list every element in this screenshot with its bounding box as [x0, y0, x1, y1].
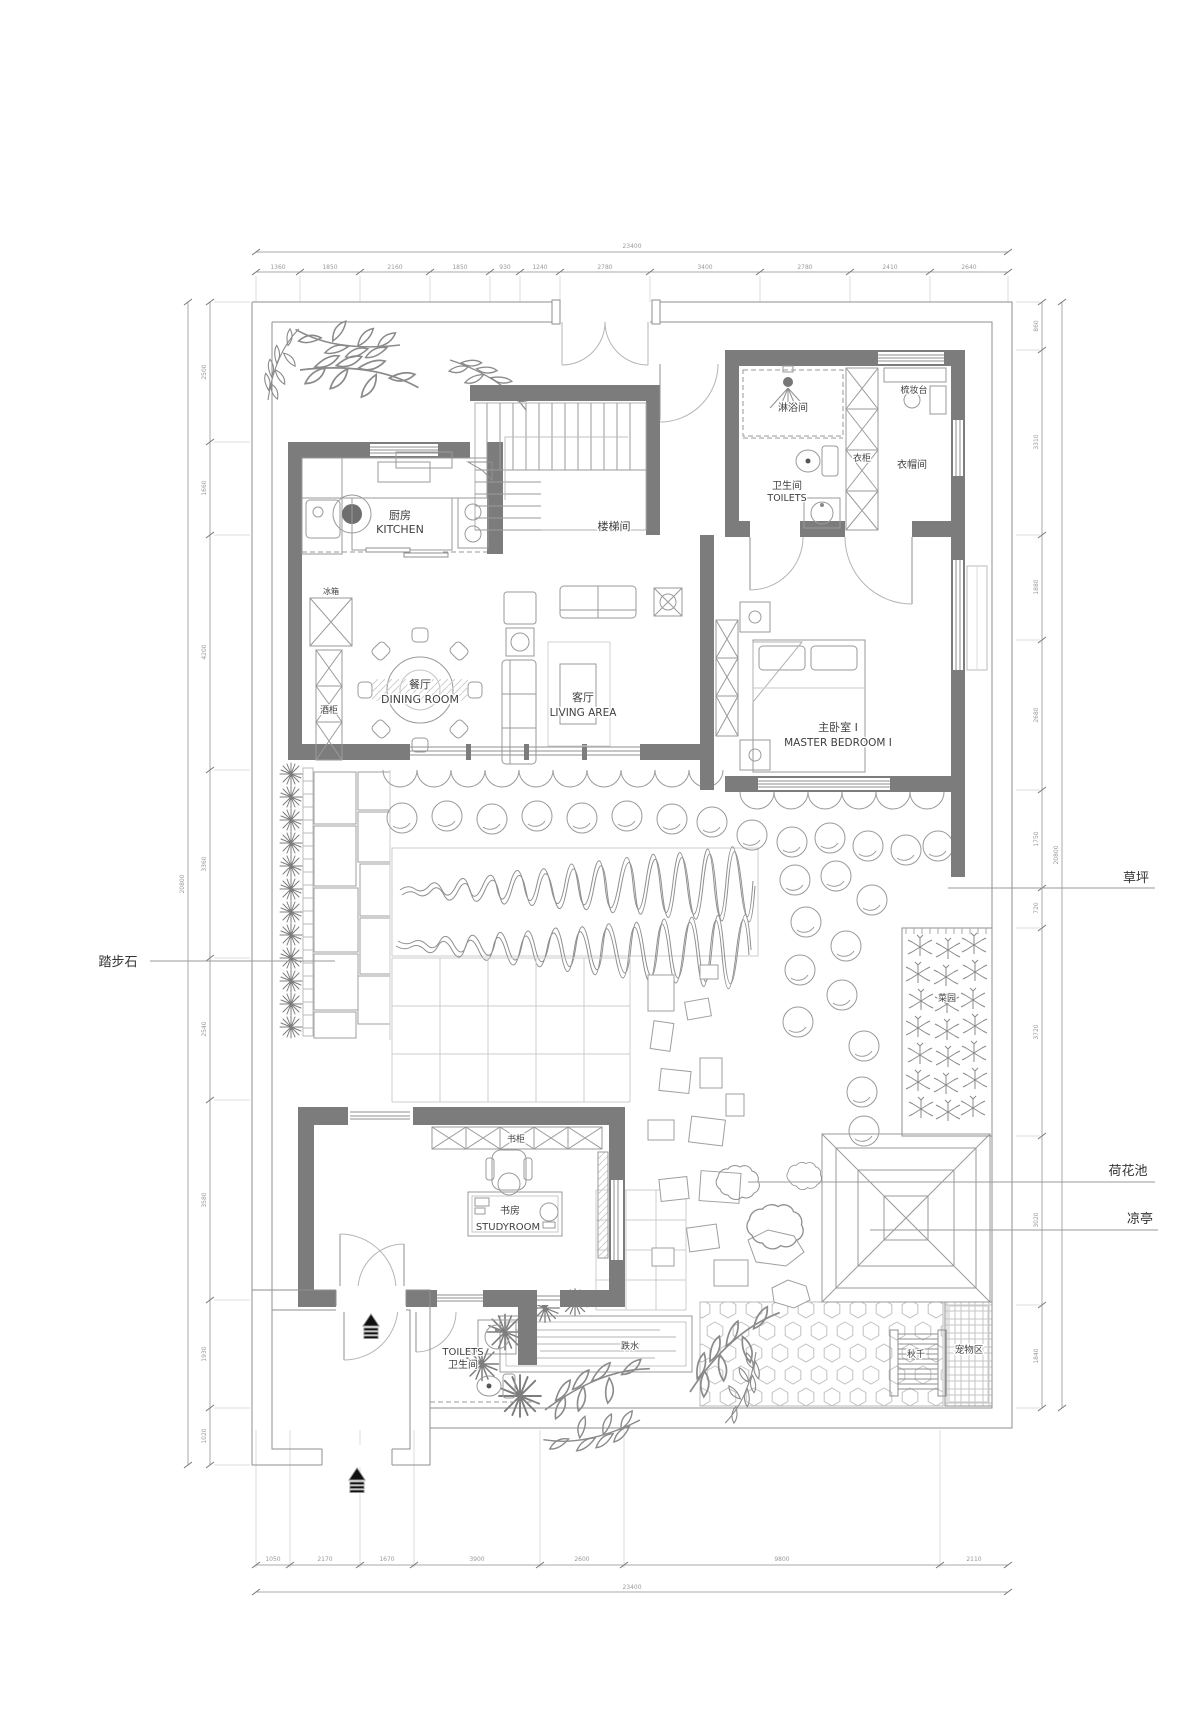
- dim: 1850: [452, 264, 467, 271]
- dim: 3720: [1033, 1024, 1040, 1039]
- dim: 2170: [317, 1556, 332, 1563]
- dim: 3310: [1033, 434, 1040, 449]
- entry-arrow-icon: [363, 1314, 379, 1339]
- dim: 3900: [469, 1556, 484, 1563]
- dining-label-zh: 餐厅: [409, 677, 431, 691]
- hedge-rail: [303, 768, 313, 1036]
- dimension-left: 20800 2500 1660 4200 3360 2540 3580 1930…: [179, 299, 214, 1468]
- cascade-label: 跌水: [621, 1340, 639, 1352]
- annotation-labels: 踏步石 草坪 荷花池 凉亭: [98, 871, 1153, 1227]
- dim: 1750: [1033, 831, 1040, 846]
- dim: 1850: [322, 264, 337, 271]
- dim: 3580: [201, 1192, 208, 1207]
- dim: 1840: [1033, 1348, 1040, 1363]
- dim: 1670: [379, 1556, 394, 1563]
- toilet-lower-label-zh: 卫生间: [448, 1358, 478, 1371]
- floor-plan-svg: 23400 1360 1850 2160 1850 930 1240 2780 …: [0, 0, 1200, 1709]
- swing-label: 秋千: [907, 1348, 925, 1360]
- living-label-en: LIVING AREA: [550, 707, 618, 719]
- main-gate-door: [562, 322, 648, 365]
- dim: 2600: [574, 1556, 589, 1563]
- stairwell-label: 楼梯间: [598, 519, 631, 533]
- dim: 9800: [774, 1556, 789, 1563]
- dim: 3360: [201, 856, 208, 871]
- dim: 1050: [265, 1556, 280, 1563]
- dim: 1240: [532, 264, 547, 271]
- toilet-lower-label-en: TOILETS: [441, 1347, 483, 1358]
- dim: 2680: [1033, 707, 1040, 722]
- floor-plan-canvas: 23400 1360 1850 2160 1850 930 1240 2780 …: [0, 0, 1200, 1709]
- dim: 1360: [270, 264, 285, 271]
- dim: 3400: [697, 264, 712, 271]
- dim: 2410: [882, 264, 897, 271]
- toilet-icon: [796, 446, 838, 476]
- stepping-stone-annotation: 踏步石: [98, 955, 137, 970]
- fridge-label: 冰箱: [323, 586, 339, 596]
- dim-bottom-total: 23400: [622, 1584, 641, 1591]
- master-bedroom-label-zh: 主卧室 I: [818, 720, 858, 734]
- shrub-circles: [387, 801, 953, 1146]
- entry-arrow-icon: [349, 1468, 365, 1493]
- dimension-right: 860 3310 1880 2680 1750 720 3720 3020 18…: [1033, 299, 1066, 1411]
- stepping-stones: [314, 770, 390, 1040]
- living-label-zh: 客厅: [572, 690, 594, 704]
- vegetable-garden: [902, 928, 992, 1136]
- dim: 2640: [961, 264, 976, 271]
- master-bedroom-label-en: MASTER BEDROOM I: [784, 737, 892, 749]
- dim: 720: [1033, 902, 1040, 914]
- dim: 930: [499, 264, 511, 271]
- dim: 2780: [797, 264, 812, 271]
- windows: [350, 352, 987, 1305]
- bookcase-label: 书柜: [507, 1133, 525, 1145]
- tile-grid-courtyard: [392, 958, 630, 1102]
- kitchen-label-zh: 厨房: [389, 509, 411, 522]
- wine-cabinet: [316, 650, 342, 760]
- dim: 1880: [1033, 579, 1040, 594]
- wardrobe-label: 衣柜: [853, 452, 871, 464]
- garden-trees-top: [251, 308, 535, 426]
- toilet-upper-label-zh: 卫生间: [772, 479, 802, 492]
- study-label-en: STUDYROOM: [476, 1222, 540, 1233]
- shower-label: 淋浴间: [778, 401, 808, 414]
- dim-right-total: 20800: [1053, 845, 1060, 864]
- dimension-bottom: 1050 2170 1670 3900 2600 9800 2110 23400: [252, 1556, 1012, 1595]
- dim: 1020: [201, 1428, 208, 1443]
- study-label-zh: 书房: [500, 1204, 520, 1217]
- fridge: [310, 598, 352, 646]
- kitchen-room: [302, 452, 492, 557]
- dim: 860: [1033, 320, 1040, 332]
- kitchen-label-en: KITCHEN: [376, 523, 424, 536]
- wine-cabinet-label: 酒柜: [320, 704, 338, 716]
- dim: 2110: [966, 1556, 981, 1563]
- dim: 3020: [1033, 1212, 1040, 1227]
- pavilion-annotation: 凉亭: [1127, 1211, 1153, 1227]
- sofa-group: [502, 586, 682, 764]
- dining-label-en: DINING ROOM: [381, 693, 459, 706]
- dim: 2780: [597, 264, 612, 271]
- lotus-pond-rocks: [648, 965, 810, 1308]
- hedge-plants: [280, 763, 302, 1038]
- dim: 2500: [201, 364, 208, 379]
- dim: 1660: [201, 480, 208, 495]
- dim: 1930: [201, 1346, 208, 1361]
- dim-left-total: 20800: [179, 874, 186, 893]
- dim: 2540: [201, 1021, 208, 1036]
- pet-area-label: 宠物区: [955, 1344, 984, 1356]
- study-room: [432, 1127, 608, 1258]
- toilet-upper-label-en: TOILETS: [766, 493, 806, 504]
- vestibule: [252, 1286, 430, 1493]
- veg-garden-label: 菜园: [938, 992, 956, 1004]
- dimension-top: 23400 1360 1850 2160 1850 930 1240 2780 …: [252, 243, 1012, 275]
- dressing-table-label: 梳妆台: [900, 384, 927, 396]
- lawn-annotation: 草坪: [1123, 871, 1149, 886]
- dim: 2160: [387, 264, 402, 271]
- lotus-pond-annotation: 荷花池: [1108, 1163, 1147, 1179]
- dim: 4200: [201, 644, 208, 659]
- pavilion: [822, 1134, 990, 1302]
- dim-top-total: 23400: [622, 243, 641, 250]
- cloakroom-label: 衣帽间: [897, 458, 927, 471]
